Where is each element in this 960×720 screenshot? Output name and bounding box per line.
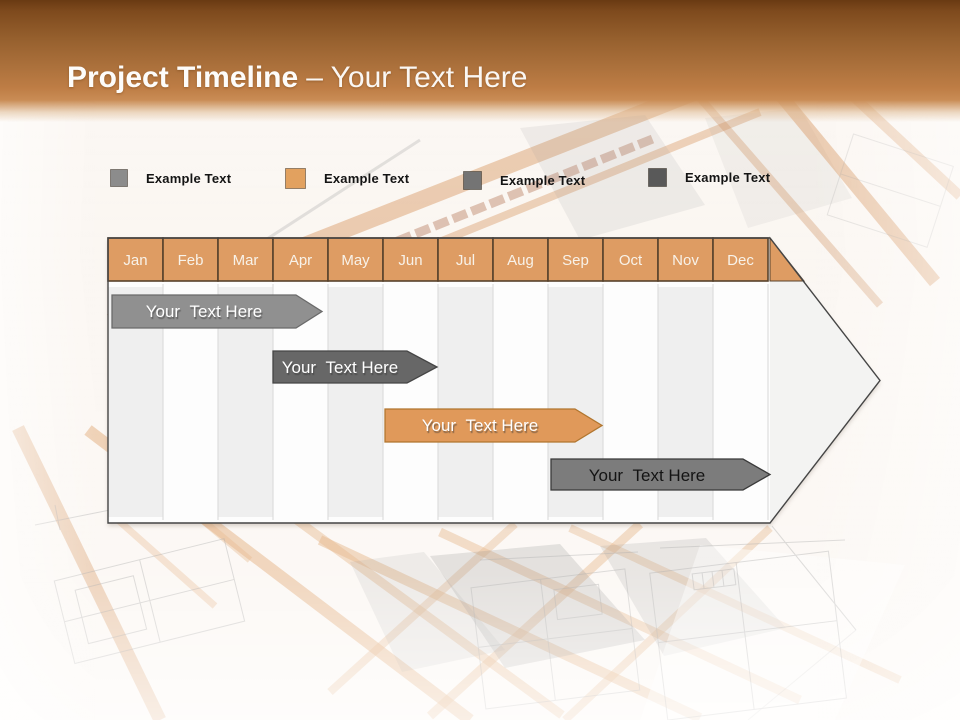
- month-label: Jun: [398, 252, 422, 269]
- month-label: May: [341, 252, 370, 269]
- legend-item-3: Example Text: [463, 171, 585, 190]
- legend-item-4: Example Text: [648, 168, 770, 187]
- legend-swatch-midgray: [463, 171, 482, 190]
- legend-label: Example Text: [500, 173, 585, 188]
- legend-label: Example Text: [146, 171, 231, 186]
- month-label: Feb: [178, 252, 204, 269]
- timeline-bar-4: Your Text Here: [551, 459, 770, 490]
- bar-label: Your Text Here: [422, 416, 539, 435]
- slide: Project Timeline– Your Text Here Example…: [0, 0, 960, 720]
- bar-label: Your Text Here: [589, 466, 706, 485]
- month-label: Apr: [289, 252, 312, 269]
- timeline-chart: Jan Feb Mar Apr May Jun Jul Aug Sep Oct …: [0, 0, 960, 720]
- column-stripe: [438, 287, 493, 517]
- legend-item-2: Example Text: [285, 168, 409, 189]
- bar-label: Your Text Here: [282, 358, 399, 377]
- month-label: Jul: [456, 252, 475, 269]
- legend-label: Example Text: [324, 171, 409, 186]
- column-stripe: [328, 287, 383, 517]
- legend-label: Example Text: [685, 170, 770, 185]
- month-label: Sep: [562, 252, 589, 269]
- legend-swatch-orange: [285, 168, 306, 189]
- bar-label: Your Text Here: [146, 302, 263, 321]
- legend-swatch-gray: [110, 169, 128, 187]
- timeline-bar-3: Your Text Here: [385, 409, 602, 442]
- month-label: Aug: [507, 252, 534, 269]
- legend-swatch-darkgray: [648, 168, 667, 187]
- month-label: Oct: [619, 252, 643, 269]
- timeline-bar-2: Your Text Here: [273, 351, 437, 383]
- month-label: Nov: [672, 252, 699, 269]
- month-label: Dec: [727, 252, 754, 269]
- month-label: Jan: [123, 252, 147, 269]
- timeline-bar-1: Your Text Here: [112, 295, 322, 328]
- legend-item-1: Example Text: [110, 169, 231, 187]
- month-label: Mar: [233, 252, 259, 269]
